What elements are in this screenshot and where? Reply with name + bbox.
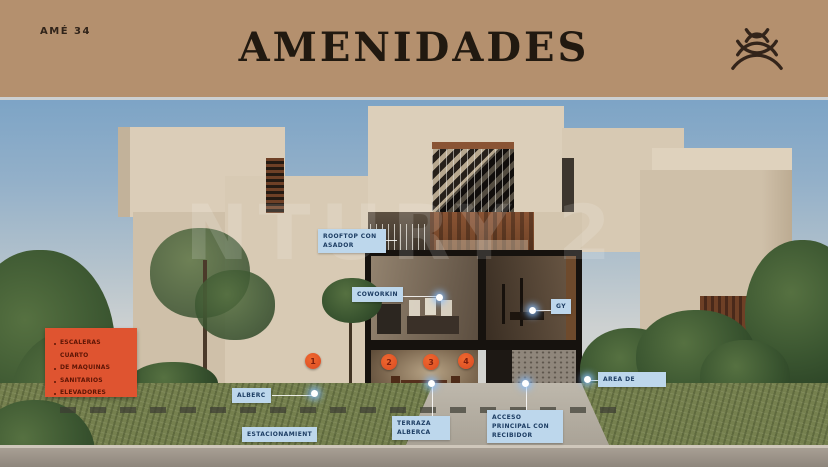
callout-access: ACCESO PRINCIPAL CON RECIBIDOR — [487, 410, 563, 443]
brand-mark-icon — [728, 20, 786, 78]
amenities-legend: ESCALERAS CUARTO DE MAQUINAS SANITARIOS … — [45, 328, 137, 397]
callout-area: AREA DE — [598, 372, 666, 387]
watermark: NTURY 2 — [185, 188, 621, 277]
callout-gym: GY — [551, 299, 571, 314]
leader-line — [432, 387, 433, 416]
header: AMÉ 34 AMENIDADES — [0, 0, 828, 100]
point-marker-access — [522, 380, 529, 387]
point-marker-terrace — [428, 380, 435, 387]
furniture — [377, 304, 401, 334]
wood-beam — [432, 142, 514, 149]
leader-line — [526, 387, 527, 410]
point-marker-area — [584, 376, 591, 383]
leader-line — [400, 296, 440, 297]
leader-line — [591, 380, 598, 381]
chair — [441, 300, 452, 316]
callout-pool: ALBERC — [232, 388, 271, 403]
bullet-icon — [54, 368, 56, 370]
building-render: NTURY 2 ESCALERAS CUARTO DE MAQUINAS SAN… — [0, 100, 828, 467]
gym-bench — [510, 312, 544, 320]
bullet-icon — [54, 381, 56, 383]
point-marker-coworking — [436, 294, 443, 301]
legend-item-label: ESCALERAS CUARTO — [60, 337, 130, 362]
callout-terrace: TERRAZA ALBERCA — [392, 416, 450, 440]
floor-slab — [371, 340, 576, 350]
callout-rooftop: ROOFTOP CON ASADOR — [318, 229, 386, 253]
chair — [409, 300, 420, 316]
numbered-marker-1: 1 — [305, 353, 321, 369]
legend-item: SANITARIOS — [52, 375, 130, 388]
legend-item: ELEVADORES — [52, 387, 130, 400]
chair — [425, 298, 436, 315]
bullet-icon — [54, 343, 56, 345]
point-marker-pool — [311, 390, 318, 397]
numbered-marker-4: 4 — [458, 353, 474, 369]
leader-line — [536, 310, 551, 311]
legend-item: ESCALERAS CUARTO — [52, 337, 130, 362]
legend-item-label: ELEVADORES — [60, 387, 106, 400]
bullet-icon — [54, 393, 56, 395]
legend-item-label: DE MAQUINAS — [60, 362, 110, 375]
page-title: AMENIDADES — [0, 24, 828, 71]
gym-equipment — [502, 284, 505, 324]
tree — [195, 270, 275, 340]
amenities-slide: AMÉ 34 AMENIDADES — [0, 0, 828, 467]
callout-parking: ESTACIONAMIENT — [242, 427, 317, 442]
legend-item-label: SANITARIOS — [60, 375, 103, 388]
legend-item: DE MAQUINAS — [52, 362, 130, 375]
leader-line — [272, 395, 312, 396]
callout-coworking: COWORKIN — [352, 287, 403, 302]
table — [407, 316, 459, 334]
numbered-marker-2: 2 — [381, 354, 397, 370]
road — [0, 445, 828, 467]
numbered-marker-3: 3 — [423, 354, 439, 370]
point-marker-gym — [529, 307, 536, 314]
